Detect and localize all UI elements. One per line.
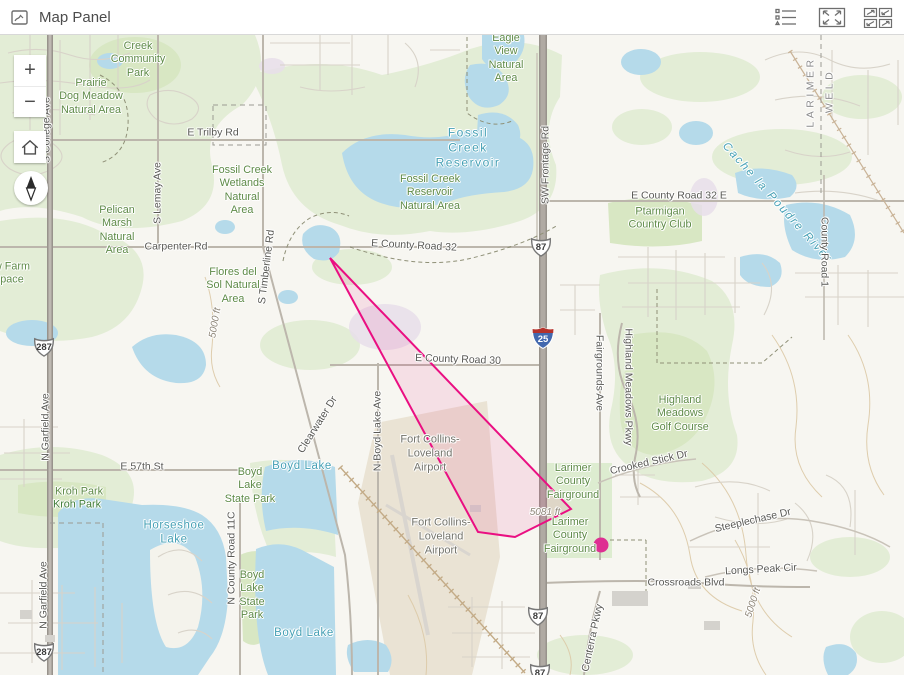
zoom-controls: + − [14,55,46,117]
compass-button[interactable] [14,171,48,205]
zoom-out-button[interactable]: − [14,86,46,117]
map-panel-app: Map Panel [0,0,904,675]
expand-button[interactable] [816,5,848,29]
feature-graphics[interactable] [0,35,904,675]
legend-list-icon [774,7,798,27]
highlight-polygon[interactable] [330,258,571,537]
point-graphic[interactable] [594,538,609,553]
map-panel-icon [10,8,29,27]
header: Map Panel [0,0,904,35]
switch-panel-button[interactable] [862,5,894,29]
legend-button[interactable] [770,5,802,29]
home-icon [19,137,41,157]
home-button[interactable] [14,131,46,163]
expand-icon [818,7,846,28]
panel-grid-icon [863,7,893,28]
map[interactable]: CreekCommunityParkPrairieDog MeadowNatur… [0,35,904,675]
header-actions [770,5,894,29]
header-left: Map Panel [10,8,111,27]
page-title: Map Panel [39,9,111,26]
compass-needle-icon [14,171,48,205]
zoom-in-button[interactable]: + [14,55,46,86]
